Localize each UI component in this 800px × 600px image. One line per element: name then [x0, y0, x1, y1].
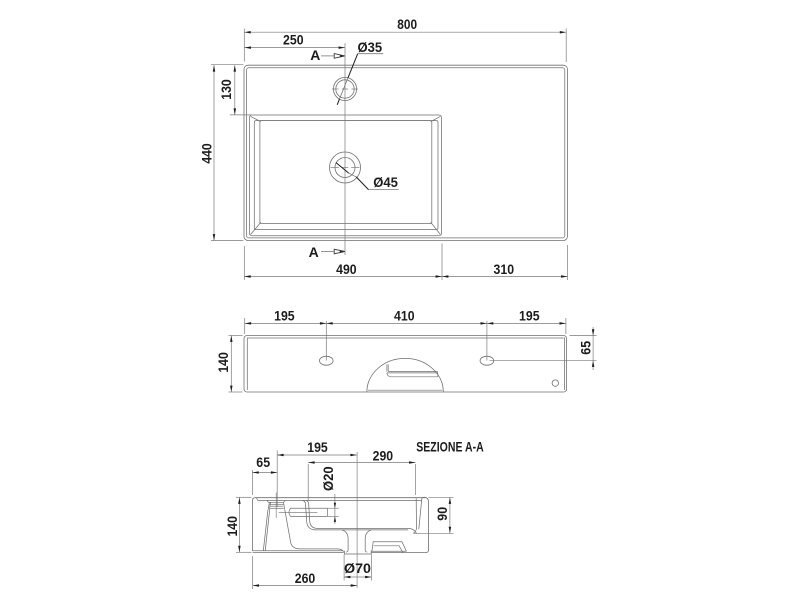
svg-text:310: 310 — [494, 261, 515, 277]
svg-text:490: 490 — [336, 261, 357, 277]
svg-text:65: 65 — [256, 454, 270, 470]
svg-text:A: A — [309, 244, 319, 260]
svg-text:410: 410 — [394, 308, 415, 324]
svg-text:A: A — [310, 47, 320, 63]
svg-text:Ø35: Ø35 — [358, 39, 383, 55]
svg-text:140: 140 — [224, 516, 240, 537]
svg-text:290: 290 — [373, 447, 394, 463]
svg-text:140: 140 — [215, 352, 231, 373]
svg-text:440: 440 — [198, 143, 214, 163]
svg-text:Ø20: Ø20 — [320, 466, 336, 491]
svg-text:130: 130 — [218, 79, 234, 100]
svg-text:195: 195 — [274, 308, 295, 324]
svg-text:800: 800 — [397, 16, 417, 32]
svg-text:195: 195 — [519, 308, 540, 324]
svg-text:90: 90 — [434, 507, 450, 521]
svg-text:Ø70: Ø70 — [344, 560, 371, 576]
svg-text:250: 250 — [283, 32, 304, 48]
svg-text:260: 260 — [295, 570, 316, 586]
svg-text:195: 195 — [307, 439, 328, 455]
svg-text:65: 65 — [577, 341, 593, 355]
svg-text:Ø45: Ø45 — [373, 174, 398, 190]
svg-text:SEZIONE A-A: SEZIONE A-A — [416, 438, 484, 454]
